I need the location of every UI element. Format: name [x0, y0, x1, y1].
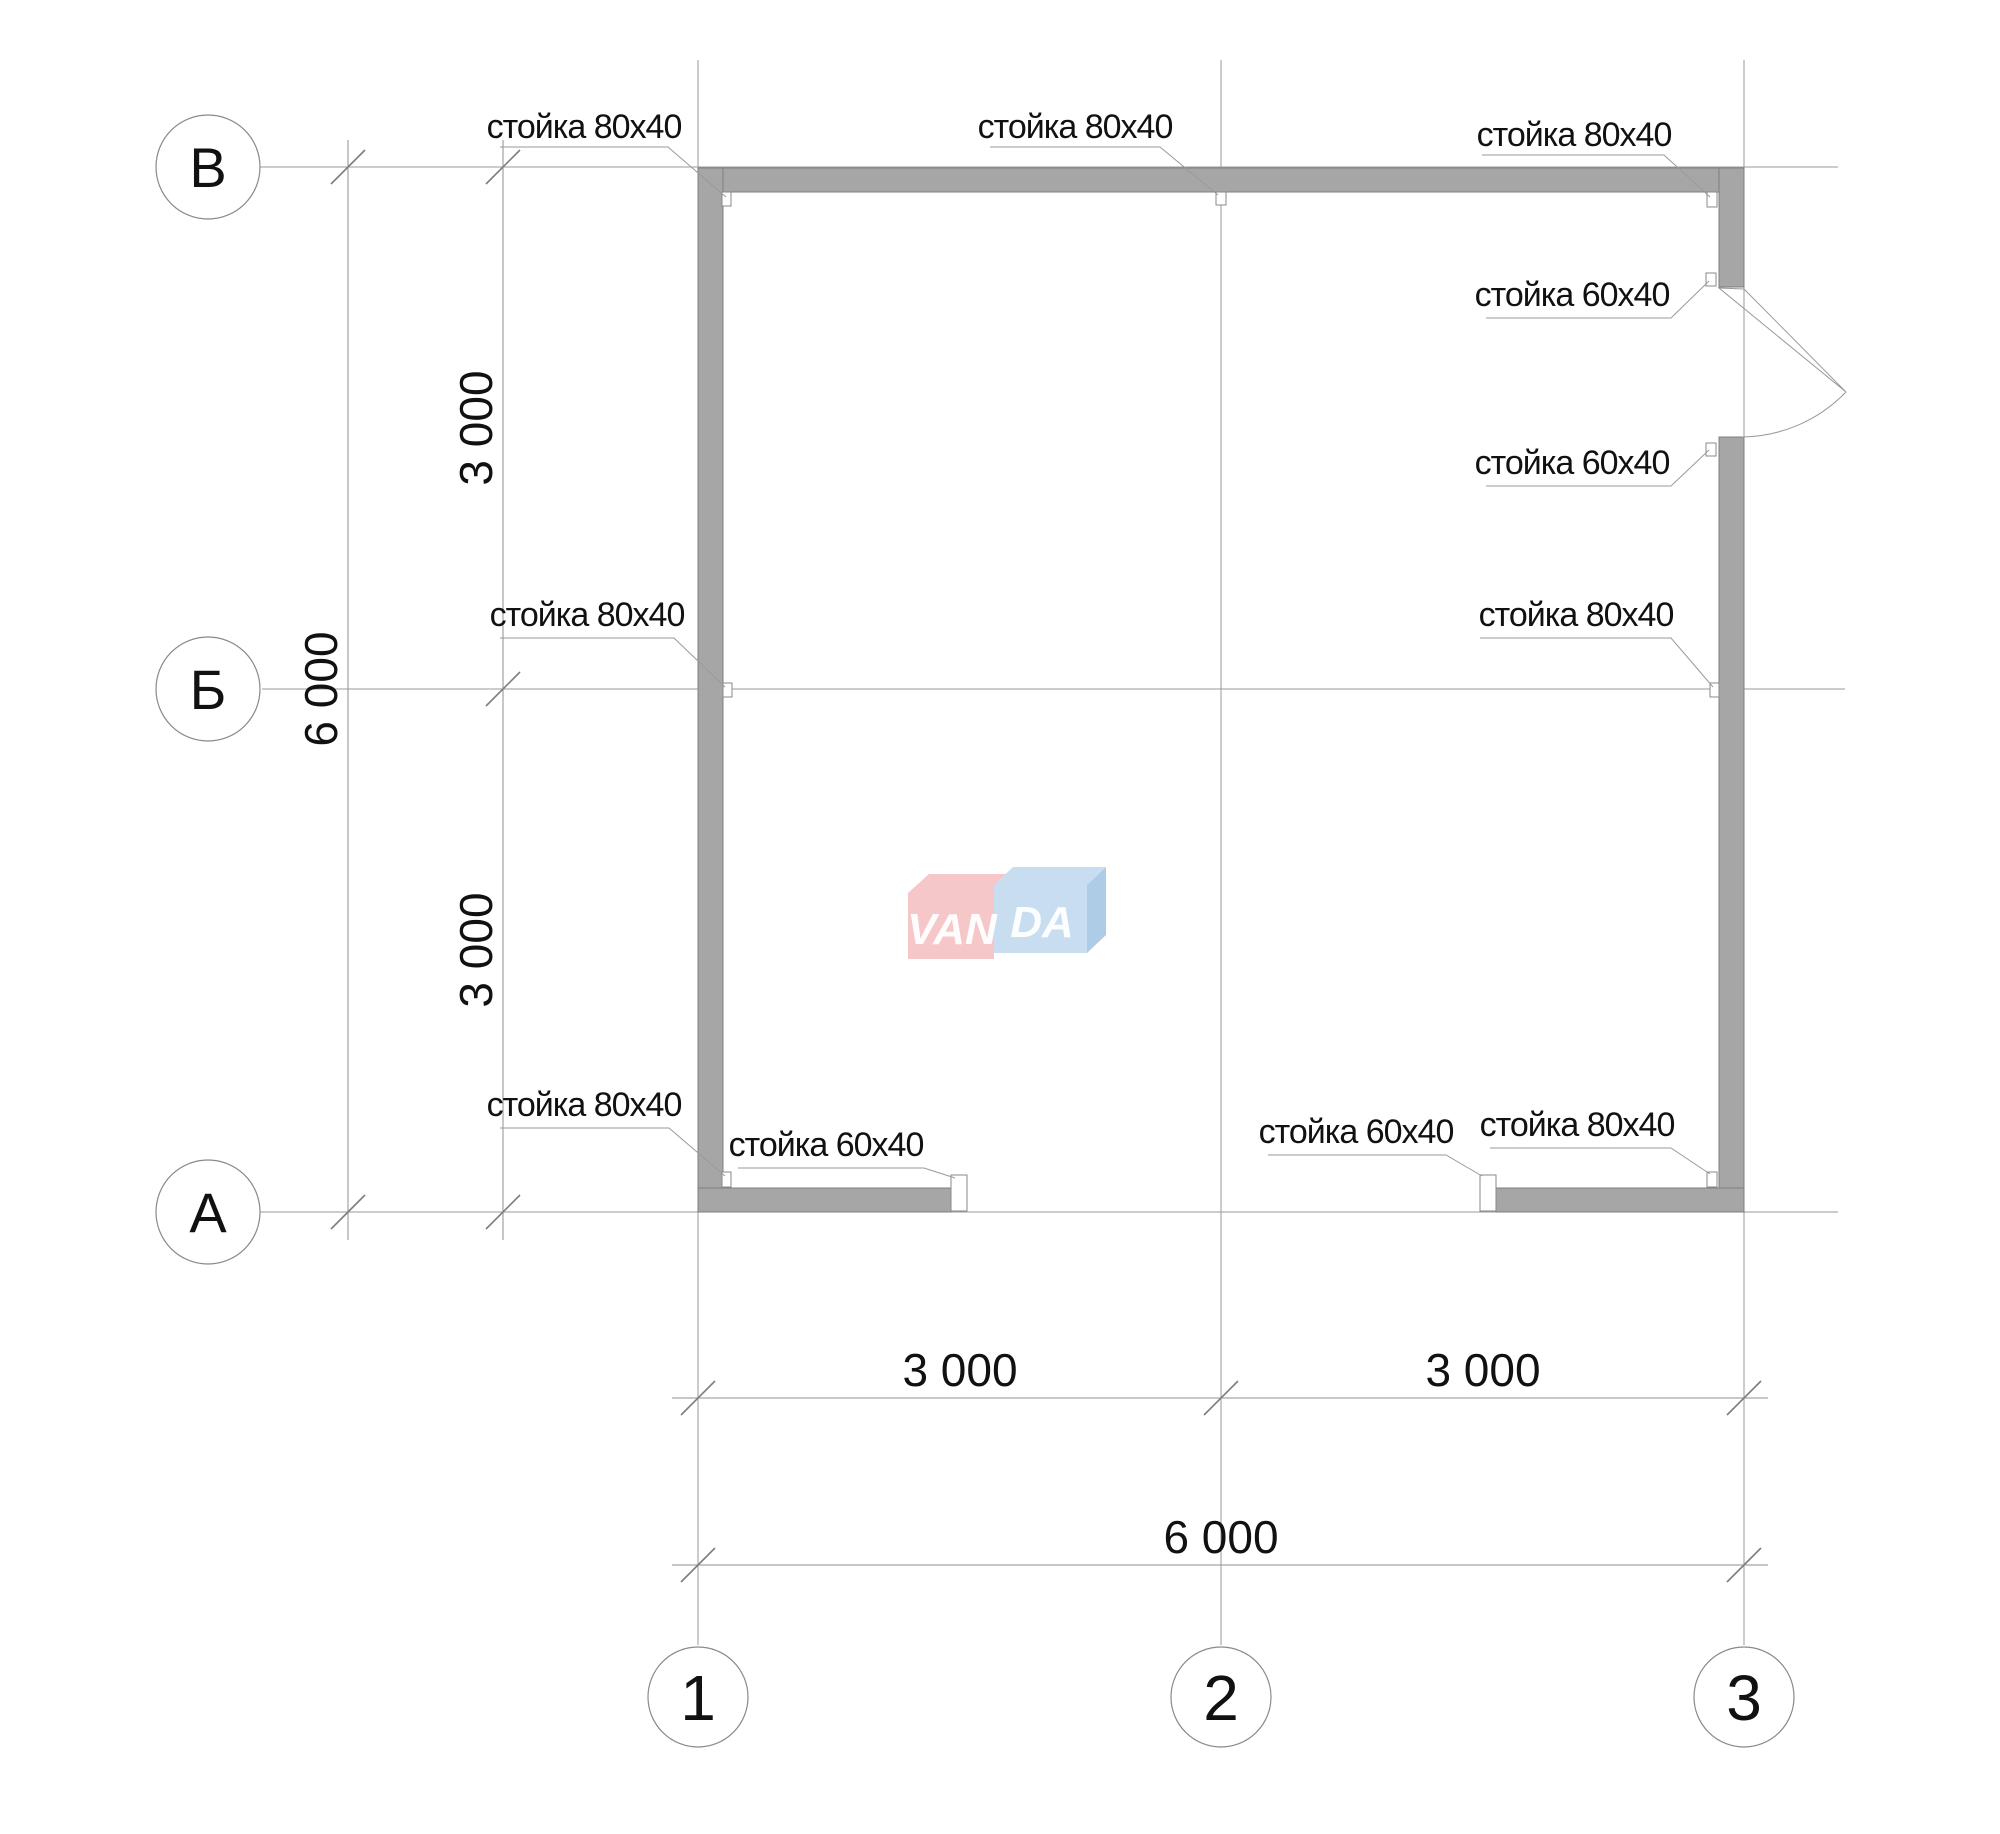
post-marker-bottom-right-corner	[1707, 1172, 1717, 1187]
dim-text-bottom-span-1: 3 000	[902, 1344, 1017, 1396]
wall-bottom-left	[698, 1188, 951, 1212]
post-marker-door-bottom	[1706, 443, 1716, 456]
logo-text-left: VAN	[907, 905, 998, 954]
post-marker-left-axis-b	[723, 683, 732, 697]
post-marker-bottom-right-opening	[1480, 1175, 1496, 1211]
stud-label: стойка 60х40	[1475, 444, 1670, 482]
axis-label-col-2: 2	[1203, 1662, 1239, 1734]
leader-top-left	[500, 147, 726, 197]
dim-text-left-span-2: 3 000	[450, 892, 502, 1007]
wall-right-above-door	[1719, 168, 1744, 287]
dimension-texts: 3 000 3 000 6 000 3 000 3 000 6 000	[295, 370, 1541, 1563]
stud-label: стойка 80х40	[978, 108, 1173, 146]
stud-labels: стойка 80х40 стойка 80х40 стойка 80х40 с…	[487, 108, 1675, 1164]
stud-label: стойка 80х40	[1480, 1106, 1675, 1144]
axis-label-row-a: А	[189, 1181, 227, 1244]
leader-right-axis-b	[1480, 638, 1713, 687]
wall-top	[698, 168, 1744, 192]
stud-label: стойка 80х40	[487, 1086, 682, 1124]
axis-label-col-1: 1	[680, 1662, 716, 1734]
post-marker-bottom-left-opening	[951, 1175, 967, 1211]
dim-text-bottom-total: 6 000	[1163, 1511, 1278, 1563]
wall-right-below-door	[1719, 437, 1744, 1212]
leader-bottom-right-corner	[1490, 1148, 1710, 1174]
axis-label-row-b: Б	[190, 658, 227, 721]
dim-text-bottom-span-2: 3 000	[1425, 1344, 1540, 1396]
post-marker-top-right	[1707, 192, 1717, 207]
dim-text-left-total: 6 000	[295, 631, 347, 746]
axis-label-col-3: 3	[1726, 1662, 1762, 1734]
leader-bottom-left-opening	[738, 1168, 955, 1178]
wall-bottom-right	[1496, 1188, 1744, 1212]
dim-text-left-span-1: 3 000	[450, 370, 502, 485]
leader-bottom-left-corner	[500, 1128, 725, 1176]
door-leaf	[1719, 288, 1846, 392]
stud-label: стойка 80х40	[490, 596, 685, 634]
stud-label: стойка 60х40	[729, 1126, 924, 1164]
door-swing-arc	[1742, 392, 1846, 437]
dimension-lines	[331, 140, 1768, 1582]
stud-label: стойка 80х40	[1479, 596, 1674, 634]
stud-label: стойка 60х40	[1259, 1113, 1454, 1151]
leader-left-axis-b	[500, 638, 725, 687]
logo-text-right: DA	[1010, 898, 1074, 947]
floor-plan-drawing: 3 000 3 000 6 000 3 000 3 000 6 000	[0, 0, 2000, 1834]
door	[1719, 288, 1846, 437]
axis-label-row-v: В	[189, 136, 226, 199]
logo-blue-lid	[994, 867, 1106, 885]
vanda-logo: VAN DA	[907, 867, 1106, 959]
floor-plan-canvas: 3 000 3 000 6 000 3 000 3 000 6 000	[0, 0, 2000, 1834]
stud-label: стойка 80х40	[487, 108, 682, 146]
stud-label: стойка 60х40	[1475, 276, 1670, 314]
leader-bottom-right-opening	[1268, 1155, 1482, 1176]
post-marker-door-top	[1706, 273, 1716, 286]
wall-left	[698, 168, 723, 1212]
stud-label: стойка 80х40	[1477, 116, 1672, 154]
